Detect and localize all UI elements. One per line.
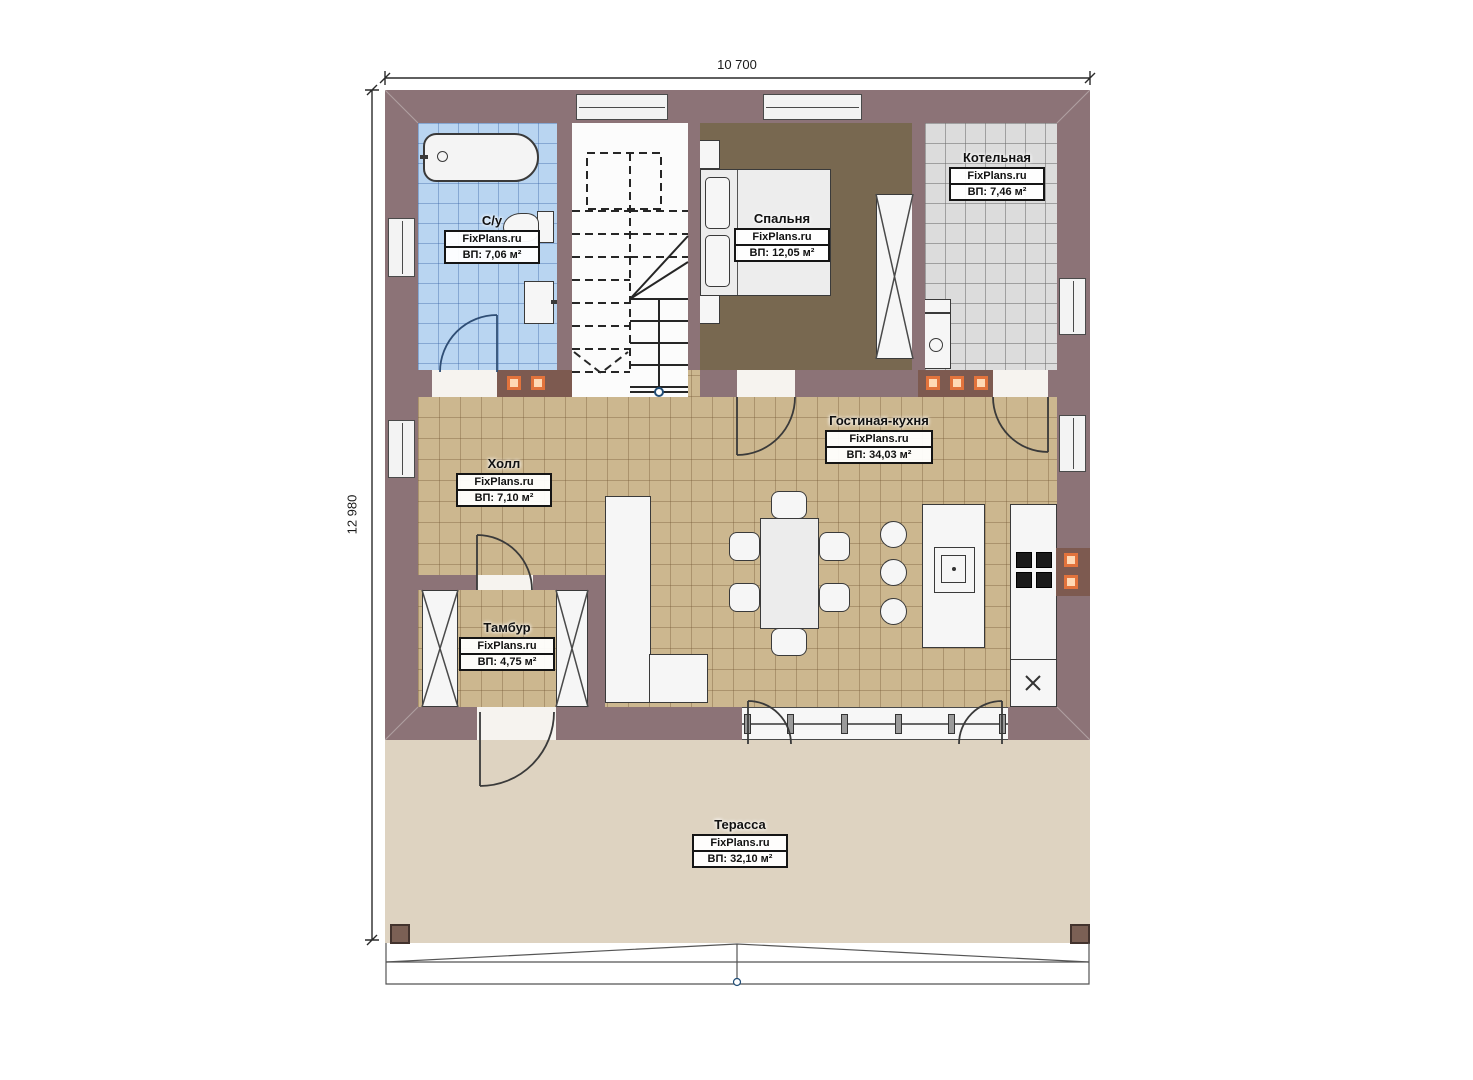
area-label: ВП: 7,10 м² — [458, 489, 550, 505]
door-swings — [440, 315, 1048, 786]
area-label: ВП: 7,46 м² — [951, 183, 1043, 199]
room-label-bathroom: С/у FixPlans.ru ВП: 7,06 м² — [444, 213, 540, 264]
area-label: ВП: 32,10 м² — [694, 850, 786, 866]
watermark-label: FixPlans.ru — [736, 230, 828, 244]
area-label: ВП: 34,03 м² — [827, 446, 931, 462]
floor-plan-page: 10 700 12 980 С/у FixPlans.ru ВП: 7,06 м… — [0, 0, 1473, 1080]
label-box: FixPlans.ru ВП: 7,46 м² — [949, 167, 1045, 201]
room-name-label: Гостиная-кухня — [825, 413, 933, 428]
plan-linework — [0, 0, 1473, 1080]
terrace-step-lines — [386, 943, 1089, 986]
room-name-label: Спальня — [734, 211, 830, 226]
room-name-label: Котельная — [949, 150, 1045, 165]
label-box: FixPlans.ru ВП: 34,03 м² — [825, 430, 933, 464]
staircase — [572, 153, 688, 396]
watermark-label: FixPlans.ru — [694, 836, 786, 850]
room-label-terrace: Терасса FixPlans.ru ВП: 32,10 м² — [692, 817, 788, 868]
watermark-label: FixPlans.ru — [461, 639, 553, 653]
watermark-label: FixPlans.ru — [446, 232, 538, 246]
room-name-label: Терасса — [692, 817, 788, 832]
room-name-label: Холл — [456, 456, 552, 471]
room-label-living: Гостиная-кухня FixPlans.ru ВП: 34,03 м² — [825, 413, 933, 464]
room-label-vestibule: Тамбур FixPlans.ru ВП: 4,75 м² — [459, 620, 555, 671]
room-name-label: С/у — [444, 213, 540, 228]
watermark-label: FixPlans.ru — [827, 432, 931, 446]
dimension-height-label: 12 980 — [345, 477, 360, 553]
room-name-label: Тамбур — [459, 620, 555, 635]
dimension-width-label: 10 700 — [699, 57, 775, 72]
dimension-lines — [365, 71, 1095, 945]
room-label-hall: Холл FixPlans.ru ВП: 7,10 м² — [456, 456, 552, 507]
label-box: FixPlans.ru ВП: 4,75 м² — [459, 637, 555, 671]
label-box: FixPlans.ru ВП: 32,10 м² — [692, 834, 788, 868]
area-label: ВП: 4,75 м² — [461, 653, 553, 669]
label-box: FixPlans.ru ВП: 7,10 м² — [456, 473, 552, 507]
room-label-bedroom: Спальня FixPlans.ru ВП: 12,05 м² — [734, 211, 830, 262]
label-box: FixPlans.ru ВП: 12,05 м² — [734, 228, 830, 262]
room-label-boiler: Котельная FixPlans.ru ВП: 7,46 м² — [949, 150, 1045, 201]
label-box: FixPlans.ru ВП: 7,06 м² — [444, 230, 540, 264]
area-label: ВП: 7,06 м² — [446, 246, 538, 262]
sink-x-mark — [1026, 676, 1040, 690]
watermark-label: FixPlans.ru — [458, 475, 550, 489]
watermark-label: FixPlans.ru — [951, 169, 1043, 183]
area-label: ВП: 12,05 м² — [736, 244, 828, 260]
